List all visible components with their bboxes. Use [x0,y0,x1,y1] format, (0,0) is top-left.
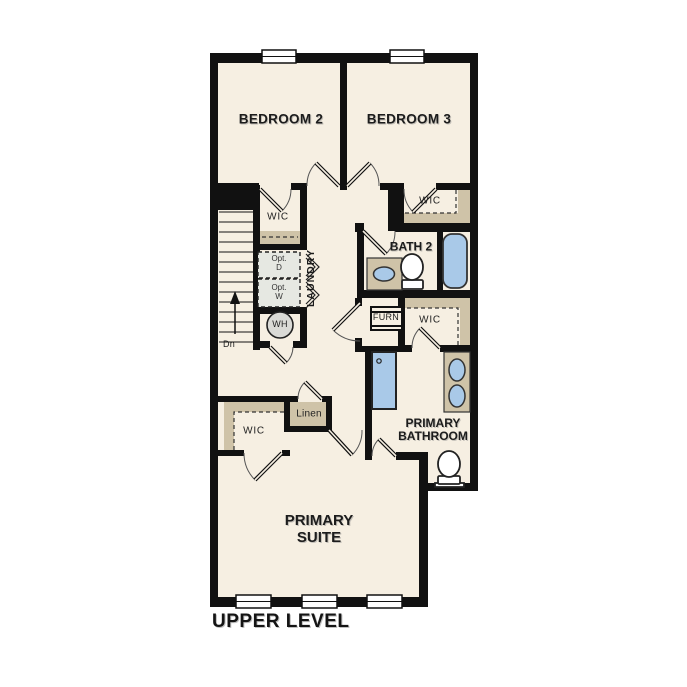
label-optional-dryer: Opt. D [271,254,286,272]
bathtub [443,234,467,288]
sink [449,359,465,381]
label-furnace: FURN [373,313,399,323]
room-label-wic-bedroom3: WIC [419,196,441,207]
room-label-wic-middle: WIC [419,315,441,326]
label-water-heater: WH [272,320,288,330]
label-optional-washer: Opt. W [271,283,286,301]
room-label-bedroom2: BEDROOM 2 [239,113,323,128]
sink [374,267,395,281]
window [390,50,424,63]
room-label-linen: Linen [296,409,321,420]
room-label-primary-bathroom: PRIMARY BATHROOM [398,417,468,443]
sink [449,385,465,407]
label-stairs-down: Dn [223,340,235,350]
window [302,595,337,608]
room-label-bedroom3: BEDROOM 3 [367,113,451,128]
floor-plan-geometry [0,0,687,687]
room-label-primary-suite: PRIMARY SUITE [285,512,354,546]
room-label-wic-primary: WIC [243,426,265,437]
page-title: UPPER LEVEL [212,611,349,633]
window [367,595,402,608]
room-label-bath2: BATH 2 [390,240,432,253]
room-label-wic-bedroom2: WIC [267,212,289,223]
room-label-laundry: LAUNDRY [306,249,318,307]
shower [372,352,396,409]
window [236,595,271,608]
toilet [401,254,423,289]
floor-plan: BEDROOM 2 BEDROOM 3 WIC WIC BATH 2 LAUND… [0,0,687,687]
window [262,50,296,63]
